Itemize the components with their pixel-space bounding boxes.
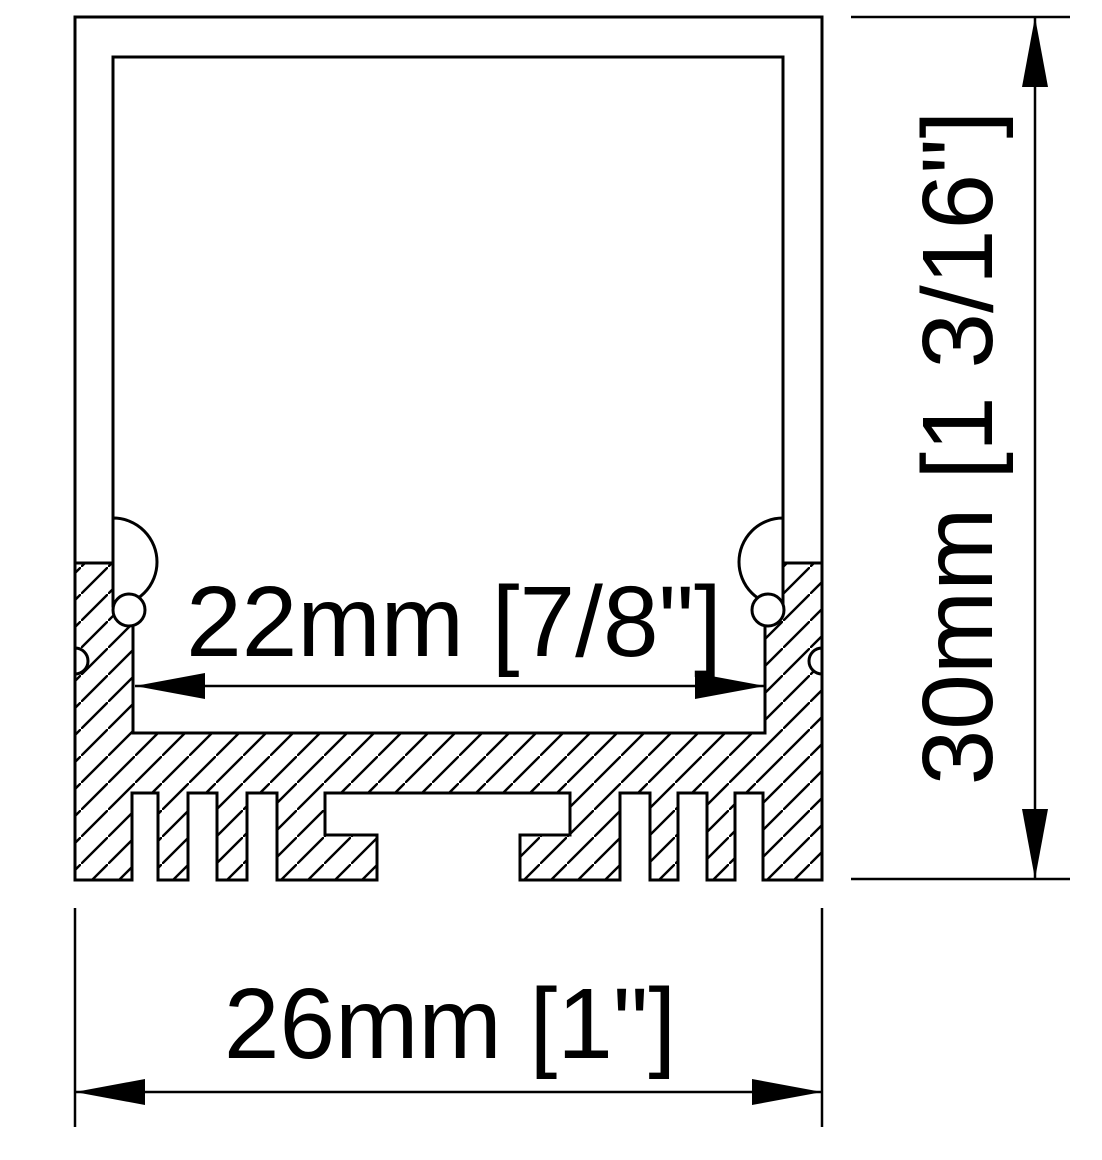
dimension-channel-inner-width: 22mm [7/8"] xyxy=(135,566,765,699)
height-arrowhead-bottom xyxy=(1022,809,1048,879)
outer-notch-left xyxy=(75,648,88,674)
clip-recess-right xyxy=(739,518,783,606)
clip-recess-left xyxy=(113,518,157,606)
clip-void-circle-left xyxy=(113,594,145,626)
inner-width-dimension-label: 22mm [7/8"] xyxy=(186,566,722,678)
height-arrowhead-top xyxy=(1022,17,1048,87)
cover-inner-outline xyxy=(113,57,783,518)
drawing-canvas: 22mm [7/8"] 26mm [1"] 30mm [1 3/16"] xyxy=(0,0,1102,1160)
outer-notch-right xyxy=(809,648,822,674)
overall-height-dimension-label: 30mm [1 3/16"] xyxy=(902,111,1014,786)
width-arrowhead-left xyxy=(75,1079,145,1105)
dimension-overall-height: 30mm [1 3/16"] xyxy=(851,17,1070,879)
clip-void-circle-right xyxy=(752,594,784,626)
width-arrowhead-right xyxy=(752,1079,822,1105)
profile-cross-section-drawing: 22mm [7/8"] 26mm [1"] 30mm [1 3/16"] xyxy=(0,0,1102,1160)
overall-width-dimension-label: 26mm [1"] xyxy=(224,968,676,1080)
cover-outer-outline xyxy=(75,17,822,563)
dimension-overall-width: 26mm [1"] xyxy=(75,908,822,1127)
